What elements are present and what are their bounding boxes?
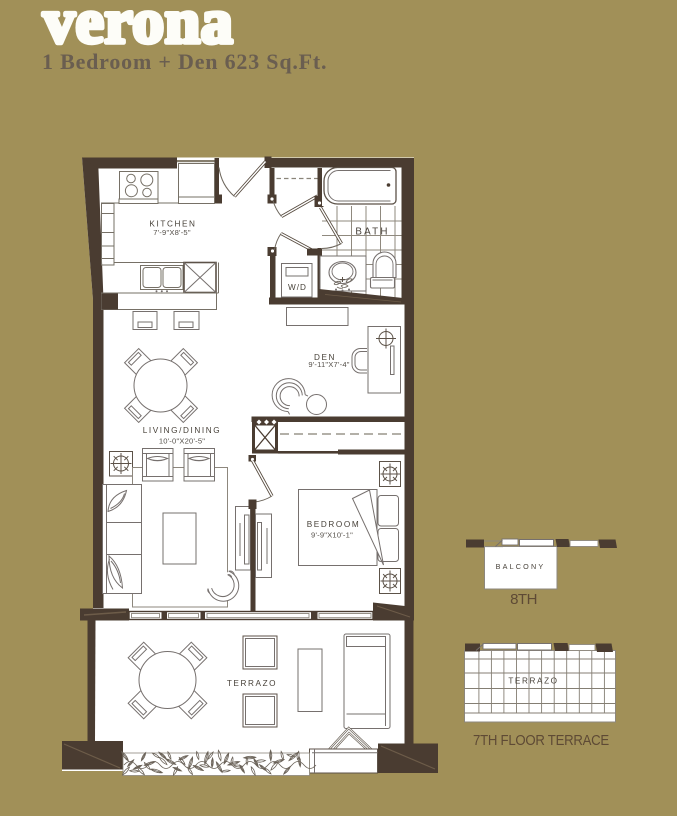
svg-text:BALCONY: BALCONY bbox=[496, 562, 546, 571]
svg-text:9'-9"X10'-1": 9'-9"X10'-1" bbox=[311, 531, 353, 540]
svg-text:9'-11"X7'-4": 9'-11"X7'-4" bbox=[308, 360, 349, 369]
svg-text:1 Bedroom + Den 623 Sq.Ft.: 1 Bedroom + Den 623 Sq.Ft. bbox=[42, 49, 327, 74]
svg-text:10'-0"X20'-5": 10'-0"X20'-5" bbox=[159, 437, 205, 446]
svg-text:TERRAZO: TERRAZO bbox=[227, 679, 277, 688]
svg-text:7TH FLOOR TERRACE: 7TH FLOOR TERRACE bbox=[473, 731, 609, 748]
svg-text:7'-9"X8'-5": 7'-9"X8'-5" bbox=[153, 228, 191, 237]
svg-text:8TH: 8TH bbox=[510, 591, 537, 608]
svg-text:BEDROOM: BEDROOM bbox=[307, 520, 361, 529]
svg-text:LIVING/DINING: LIVING/DINING bbox=[143, 426, 222, 435]
svg-text:W/D: W/D bbox=[288, 283, 307, 292]
svg-text:TERRAZO: TERRAZO bbox=[508, 677, 558, 686]
svg-text:BATH: BATH bbox=[355, 227, 389, 238]
